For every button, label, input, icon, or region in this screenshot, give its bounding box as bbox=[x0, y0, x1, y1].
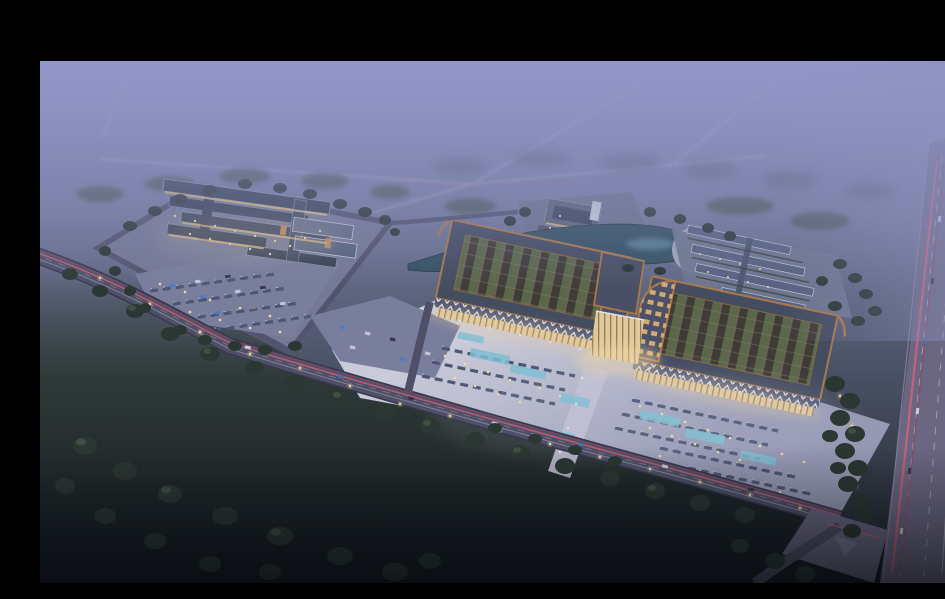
letterbox-bar bbox=[40, 16, 945, 61]
architectural-aerial-render bbox=[40, 16, 945, 583]
render-canvas bbox=[40, 16, 945, 583]
right-distance-haze bbox=[780, 61, 945, 341]
bottom-vignette bbox=[40, 446, 945, 583]
